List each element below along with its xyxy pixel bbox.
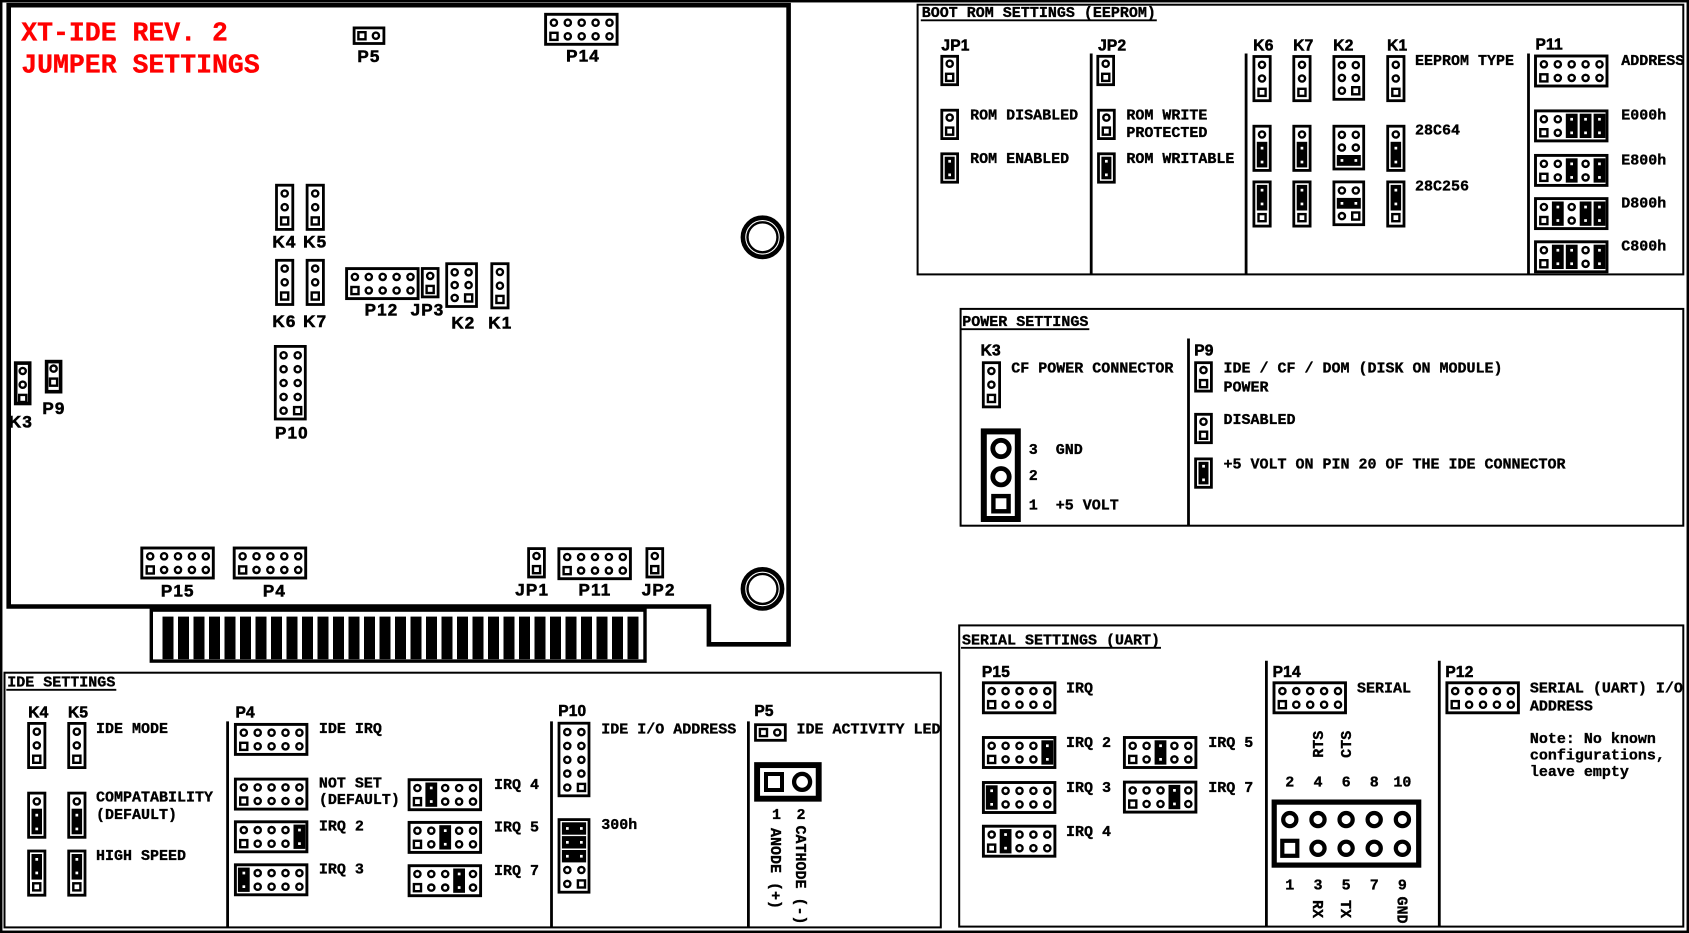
svg-text:POWER: POWER xyxy=(1224,379,1269,396)
svg-text:P4: P4 xyxy=(263,582,286,601)
svg-text:K3: K3 xyxy=(981,343,1001,360)
svg-text:SERIAL SETTINGS (UART): SERIAL SETTINGS (UART) xyxy=(962,632,1160,649)
svg-text:IRQ 3: IRQ 3 xyxy=(319,862,364,879)
svg-text:IDE ACTIVITY LED: IDE ACTIVITY LED xyxy=(797,722,941,739)
svg-text:E800h: E800h xyxy=(1621,152,1666,169)
svg-text:IDE SETTINGS: IDE SETTINGS xyxy=(7,674,115,691)
svg-text:9: 9 xyxy=(1398,877,1407,894)
svg-text:ADDRESS: ADDRESS xyxy=(1530,698,1593,715)
svg-text:(DEFAULT): (DEFAULT) xyxy=(319,792,400,809)
svg-text:JP1: JP1 xyxy=(515,581,549,600)
svg-text:P12: P12 xyxy=(1445,664,1473,681)
svg-text:IRQ 2: IRQ 2 xyxy=(1066,735,1111,752)
svg-text:P15: P15 xyxy=(161,582,195,601)
svg-text:IRQ 7: IRQ 7 xyxy=(1208,780,1253,797)
svg-text:EEPROM TYPE: EEPROM TYPE xyxy=(1415,53,1514,70)
svg-text:K1: K1 xyxy=(1387,37,1407,54)
svg-text:NOT SET: NOT SET xyxy=(319,775,382,792)
svg-text:configurations,: configurations, xyxy=(1530,747,1665,764)
svg-text:P9: P9 xyxy=(1194,343,1214,360)
svg-text:P5: P5 xyxy=(754,703,774,720)
svg-text:P5: P5 xyxy=(357,47,380,66)
svg-text:SERIAL (UART) I/O: SERIAL (UART) I/O xyxy=(1530,680,1683,697)
svg-text:4: 4 xyxy=(1313,774,1322,791)
svg-text:PROTECTED: PROTECTED xyxy=(1126,125,1207,142)
svg-text:IRQ 5: IRQ 5 xyxy=(1208,735,1253,752)
svg-text:7: 7 xyxy=(1370,877,1379,894)
svg-text:(DEFAULT): (DEFAULT) xyxy=(96,807,177,824)
svg-text:P10: P10 xyxy=(275,423,309,442)
svg-text:P11: P11 xyxy=(1536,36,1564,53)
svg-text:28C256: 28C256 xyxy=(1415,178,1469,195)
svg-text:K2: K2 xyxy=(451,313,475,332)
svg-text:P11: P11 xyxy=(578,581,611,600)
svg-text:IDE IRQ: IDE IRQ xyxy=(319,721,382,738)
svg-text:ROM DISABLED: ROM DISABLED xyxy=(970,108,1078,125)
svg-text:2: 2 xyxy=(1285,774,1294,791)
svg-text:5: 5 xyxy=(1342,877,1351,894)
svg-text:IRQ 7: IRQ 7 xyxy=(494,863,539,880)
svg-text:P15: P15 xyxy=(982,664,1010,681)
svg-text:D800h: D800h xyxy=(1621,196,1666,213)
svg-text:IDE / CF / DOM (DISK ON MODULE: IDE / CF / DOM (DISK ON MODULE) xyxy=(1224,360,1503,377)
svg-text:K6: K6 xyxy=(272,312,296,331)
svg-text:TX: TX xyxy=(1336,900,1353,918)
svg-text:CATHODE (-): CATHODE (-) xyxy=(791,826,808,925)
svg-text:K2: K2 xyxy=(1333,37,1353,54)
svg-text:K6: K6 xyxy=(1253,37,1273,54)
svg-text:P14: P14 xyxy=(566,46,600,65)
svg-text:K5: K5 xyxy=(303,233,327,252)
svg-text:IRQ 3: IRQ 3 xyxy=(1066,780,1111,797)
svg-text:C800h: C800h xyxy=(1621,239,1666,256)
svg-text:3 GND: 3 GND xyxy=(1029,442,1083,459)
svg-text:1: 1 xyxy=(1285,877,1294,894)
svg-text:K7: K7 xyxy=(303,312,327,331)
svg-text:ROM WRITE: ROM WRITE xyxy=(1126,108,1207,125)
svg-text:P14: P14 xyxy=(1273,664,1301,681)
svg-text:2: 2 xyxy=(797,807,806,824)
svg-text:IRQ 4: IRQ 4 xyxy=(494,777,539,794)
svg-text:300h: 300h xyxy=(601,817,637,834)
svg-text:ADDRESS: ADDRESS xyxy=(1621,53,1684,70)
svg-text:DISABLED: DISABLED xyxy=(1224,412,1296,429)
svg-text:leave empty: leave empty xyxy=(1530,764,1629,781)
svg-text:K4: K4 xyxy=(272,233,296,252)
svg-text:IRQ 2: IRQ 2 xyxy=(319,819,364,836)
svg-text:RX: RX xyxy=(1308,900,1325,918)
svg-text:8: 8 xyxy=(1370,774,1379,791)
svg-text:28C64: 28C64 xyxy=(1415,123,1460,140)
svg-text:ROM ENABLED: ROM ENABLED xyxy=(970,151,1069,168)
svg-text:GND: GND xyxy=(1392,897,1409,924)
svg-text:K3: K3 xyxy=(9,413,33,432)
svg-text:JP2: JP2 xyxy=(642,581,676,600)
svg-text:JP3: JP3 xyxy=(411,301,445,320)
svg-text:P10: P10 xyxy=(558,703,586,720)
svg-text:E000h: E000h xyxy=(1621,108,1666,125)
svg-text:IDE MODE: IDE MODE xyxy=(96,721,168,738)
svg-text:COMPATABILITY: COMPATABILITY xyxy=(96,789,213,806)
svg-text:ROM WRITABLE: ROM WRITABLE xyxy=(1126,151,1234,168)
svg-text:JUMPER SETTINGS: JUMPER SETTINGS xyxy=(21,51,260,81)
svg-text:10: 10 xyxy=(1393,774,1411,791)
svg-text:ANODE (+): ANODE (+) xyxy=(766,828,783,909)
svg-text:1: 1 xyxy=(772,807,781,824)
svg-text:CTS: CTS xyxy=(1339,731,1356,758)
svg-text:IRQ 4: IRQ 4 xyxy=(1066,824,1111,841)
svg-text:K5: K5 xyxy=(68,704,88,721)
svg-text:SERIAL: SERIAL xyxy=(1357,680,1411,697)
svg-text:K1: K1 xyxy=(488,313,512,332)
svg-text:P4: P4 xyxy=(236,704,256,721)
svg-text:P9: P9 xyxy=(42,399,65,418)
svg-text:CF POWER CONNECTOR: CF POWER CONNECTOR xyxy=(1011,360,1173,377)
svg-text:RTS: RTS xyxy=(1311,731,1328,758)
svg-text:POWER SETTINGS: POWER SETTINGS xyxy=(962,314,1088,331)
svg-text:JP1: JP1 xyxy=(941,37,969,54)
svg-text:+5 VOLT ON PIN 20 OF THE IDE C: +5 VOLT ON PIN 20 OF THE IDE CONNECTOR xyxy=(1224,457,1566,474)
svg-text:K7: K7 xyxy=(1293,37,1313,54)
svg-text:6: 6 xyxy=(1342,774,1351,791)
svg-text:K4: K4 xyxy=(28,704,48,721)
svg-text:XT-IDE REV. 2: XT-IDE REV. 2 xyxy=(21,18,228,48)
svg-text:3: 3 xyxy=(1313,877,1322,894)
svg-text:1 +5 VOLT: 1 +5 VOLT xyxy=(1029,497,1119,514)
svg-text:BOOT ROM SETTINGS (EEPROM): BOOT ROM SETTINGS (EEPROM) xyxy=(922,5,1156,22)
svg-text:IDE I/O ADDRESS: IDE I/O ADDRESS xyxy=(601,722,736,739)
svg-text:JP2: JP2 xyxy=(1098,37,1126,54)
svg-text:IRQ: IRQ xyxy=(1066,680,1093,697)
svg-text:HIGH SPEED: HIGH SPEED xyxy=(96,848,186,865)
svg-text:IRQ 5: IRQ 5 xyxy=(494,820,539,837)
svg-text:P12: P12 xyxy=(365,301,399,320)
svg-text:Note: No known: Note: No known xyxy=(1530,731,1656,748)
svg-text:2: 2 xyxy=(1029,468,1038,485)
